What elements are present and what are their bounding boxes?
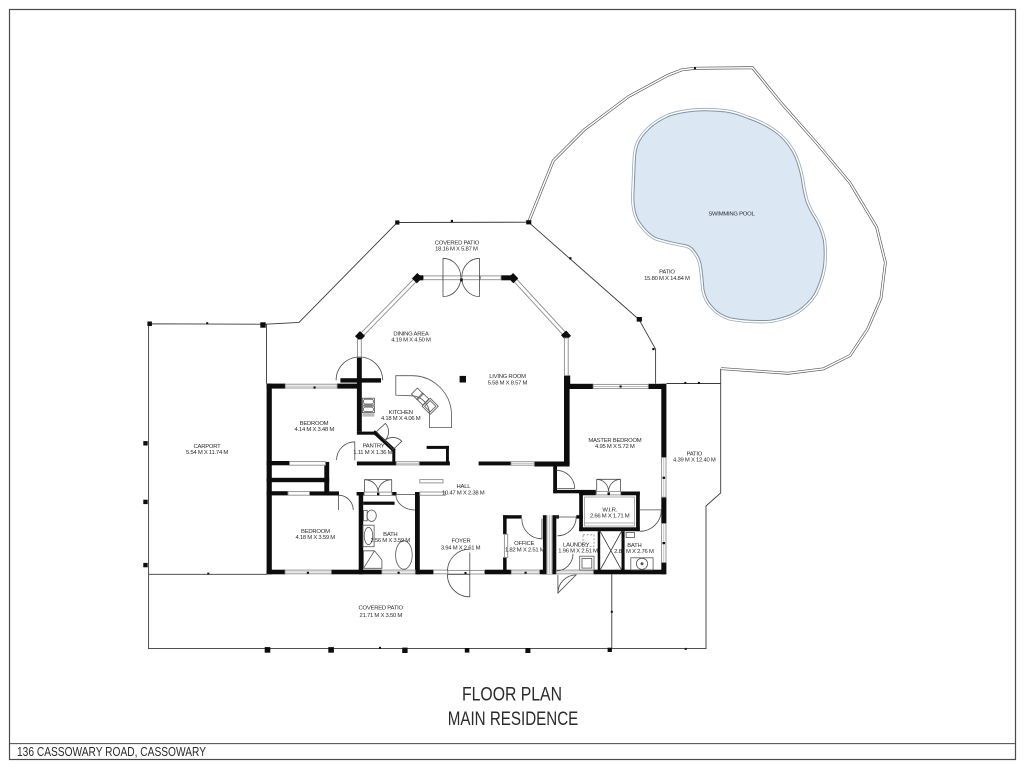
svg-text:1.82 M X 2.51 M: 1.82 M X 2.51 M — [505, 547, 545, 553]
svg-text:FLOOR PLAN: FLOOR PLAN — [462, 684, 562, 706]
svg-text:4.95 M X 5.72 M: 4.95 M X 5.72 M — [595, 444, 635, 450]
svg-text:W.I.R.: W.I.R. — [602, 507, 617, 513]
svg-text:BATH: BATH — [627, 543, 641, 549]
svg-text:18.16 M X 5.87 M: 18.16 M X 5.87 M — [435, 247, 478, 253]
svg-text:5.58 M X 8.57 M: 5.58 M X 8.57 M — [488, 380, 528, 386]
svg-text:15.80 M X 14.84 M: 15.80 M X 14.84 M — [644, 276, 690, 282]
svg-text:FOYER: FOYER — [451, 539, 470, 545]
svg-text:COVERED PATIO: COVERED PATIO — [435, 240, 480, 246]
svg-text:COVERED PATIO: COVERED PATIO — [359, 605, 404, 611]
svg-text:2.89 M X 2.76 M: 2.89 M X 2.76 M — [614, 549, 654, 555]
svg-text:4.39 M X 12.40 M: 4.39 M X 12.40 M — [673, 458, 716, 464]
svg-text:SWIMMING POOL: SWIMMING POOL — [708, 212, 755, 218]
svg-text:4.14 M X 3.48 M: 4.14 M X 3.48 M — [295, 427, 335, 433]
svg-text:PATIO: PATIO — [687, 451, 703, 457]
svg-text:2.56 M X 3.59 M: 2.56 M X 3.59 M — [370, 538, 410, 544]
svg-text:MAIN RESIDENCE: MAIN RESIDENCE — [448, 708, 579, 730]
svg-text:4.19 M X 4.50 M: 4.19 M X 4.50 M — [391, 338, 431, 344]
svg-text:10.47 M X 2.38 M: 10.47 M X 2.38 M — [442, 490, 485, 496]
svg-text:2.66 M X 1.71 M: 2.66 M X 1.71 M — [590, 514, 630, 520]
svg-text:DINING AREA: DINING AREA — [393, 331, 429, 337]
svg-text:PANTRY: PANTRY — [363, 444, 385, 450]
svg-text:KITCHEN: KITCHEN — [389, 410, 413, 416]
svg-text:OFFICE: OFFICE — [514, 541, 534, 547]
svg-text:PATIO: PATIO — [659, 270, 675, 276]
svg-text:4.18 M X 3.59 M: 4.18 M X 3.59 M — [295, 535, 335, 541]
svg-text:136 CASSOWARY ROAD, CASSOWARY: 136 CASSOWARY ROAD, CASSOWARY — [17, 744, 206, 759]
svg-text:LIVING ROOM: LIVING ROOM — [489, 374, 526, 380]
svg-text:HALL: HALL — [457, 484, 472, 490]
svg-text:1.96 M X 2.51 M: 1.96 M X 2.51 M — [558, 549, 598, 555]
svg-text:1.11 M X 1.36 M: 1.11 M X 1.36 M — [353, 450, 392, 456]
svg-text:21.71 M X 3.50 M: 21.71 M X 3.50 M — [360, 613, 403, 619]
svg-text:CARPORT: CARPORT — [194, 444, 222, 450]
svg-text:LAUNDRY: LAUNDRY — [563, 542, 590, 548]
svg-text:MASTER BEDROOM: MASTER BEDROOM — [588, 438, 641, 444]
svg-text:4.18 M X 4.06 M: 4.18 M X 4.06 M — [381, 416, 421, 422]
svg-text:5.54 M X 11.74 M: 5.54 M X 11.74 M — [186, 450, 228, 456]
svg-text:3.94 M X 2.61 M: 3.94 M X 2.61 M — [441, 545, 481, 551]
